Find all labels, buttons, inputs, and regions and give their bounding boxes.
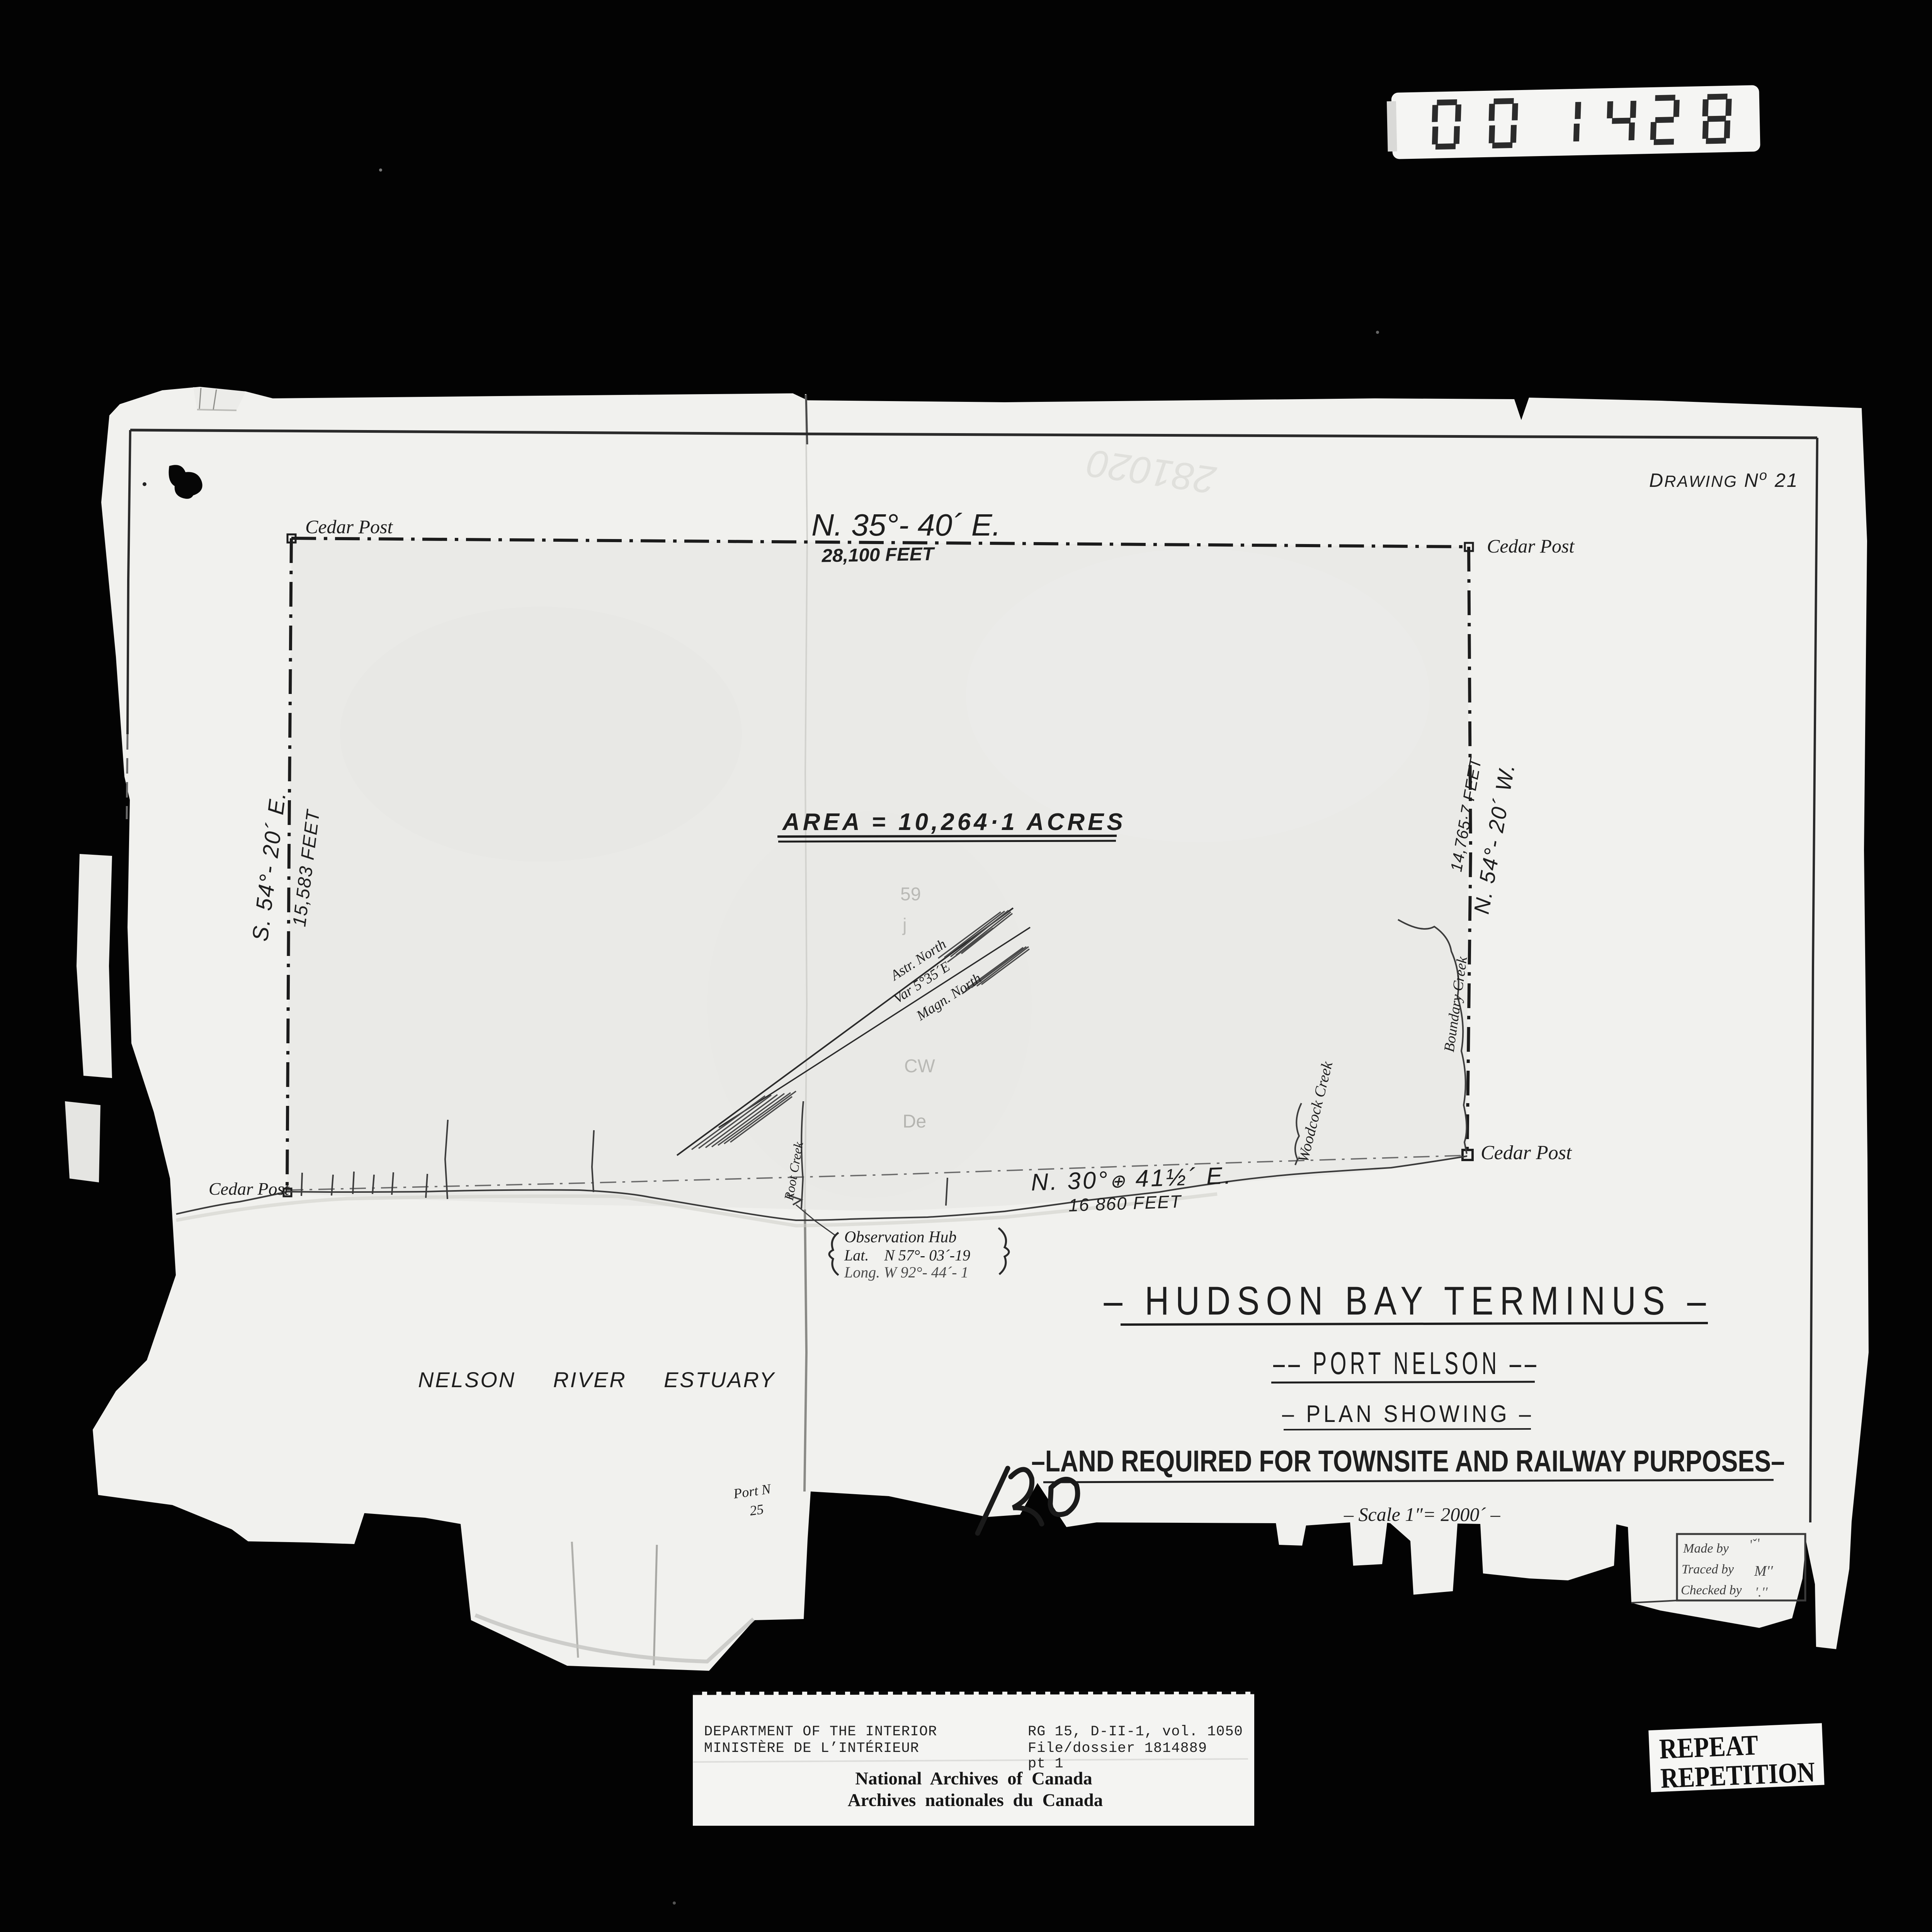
svg-text:Cedar Post: Cedar Post <box>305 516 393 537</box>
svg-text:25: 25 <box>749 1501 765 1519</box>
svg-text:– Scale 1″= 2000´ –: – Scale 1″= 2000´ – <box>1344 1503 1500 1525</box>
svg-text:Made by: Made by <box>1683 1541 1729 1556</box>
svg-text:Cedar Post: Cedar Post <box>1487 535 1575 557</box>
svg-text:REPETITION: REPETITION <box>1660 1756 1816 1794</box>
svg-text:Lat. N 57°- 03´-19: Lat. N 57°- 03´-19 <box>844 1247 970 1264</box>
svg-text:De: De <box>903 1111 926 1132</box>
svg-text:–LAND REQUIRED FOR TOWNSITE AN: –LAND REQUIRED FOR TOWNSITE AND RAILWAY … <box>1031 1444 1785 1478</box>
svg-text:Cedar Post: Cedar Post <box>1481 1142 1572 1164</box>
svg-text:Observation Hub: Observation Hub <box>844 1228 956 1246</box>
svg-text:Cedar Post: Cedar Post <box>209 1179 290 1199</box>
svg-text:′.′′: ′.′′ <box>1755 1584 1768 1600</box>
svg-text:RG 15, D-II-1, vol. 1050: RG 15, D-II-1, vol. 1050 <box>1028 1724 1243 1740</box>
svg-text:– HUDSON BAY TERMINUS –: – HUDSON BAY TERMINUS – <box>1104 1279 1713 1323</box>
svg-text:National Archives of Canada: National Archives of Canada <box>855 1769 1092 1789</box>
svg-text:28,100 FEET: 28,100 FEET <box>821 544 935 566</box>
svg-text:AREA = 10,264·1 ACRES: AREA = 10,264·1 ACRES <box>782 809 1126 835</box>
svg-text:j: j <box>902 915 907 935</box>
svg-text:Long. W 92°- 44´- 1: Long. W 92°- 44´- 1 <box>844 1264 969 1281</box>
svg-text:File/dossier 1814889: File/dossier 1814889 <box>1028 1740 1207 1757</box>
svg-text:Traced by: Traced by <box>1682 1562 1734 1577</box>
svg-text:CW: CW <box>904 1056 935 1077</box>
svg-text:Checked by: Checked by <box>1681 1583 1742 1597</box>
svg-text:59: 59 <box>900 884 921 905</box>
svg-text:16 860 FEET: 16 860 FEET <box>1068 1191 1182 1215</box>
svg-text:– PLAN SHOWING –: – PLAN SHOWING – <box>1282 1401 1534 1427</box>
svg-text:NELSON RIVER ESTUARY: NELSON RIVER ESTUARY <box>418 1367 776 1392</box>
svg-text:N. 35°- 40´ E.: N. 35°- 40´ E. <box>811 508 1001 542</box>
svg-text:–– PORT NELSON ––: –– PORT NELSON –– <box>1273 1346 1540 1381</box>
svg-text:MINISTÈRE DE L’INTÉRIEUR: MINISTÈRE DE L’INTÉRIEUR <box>704 1740 919 1757</box>
svg-text:DEPARTMENT OF THE INTERIOR: DEPARTMENT OF THE INTERIOR <box>704 1724 937 1740</box>
svg-text:M′′: M′′ <box>1754 1563 1773 1579</box>
svg-text:Archives nationales du Canada: Archives nationales du Canada <box>848 1790 1103 1810</box>
